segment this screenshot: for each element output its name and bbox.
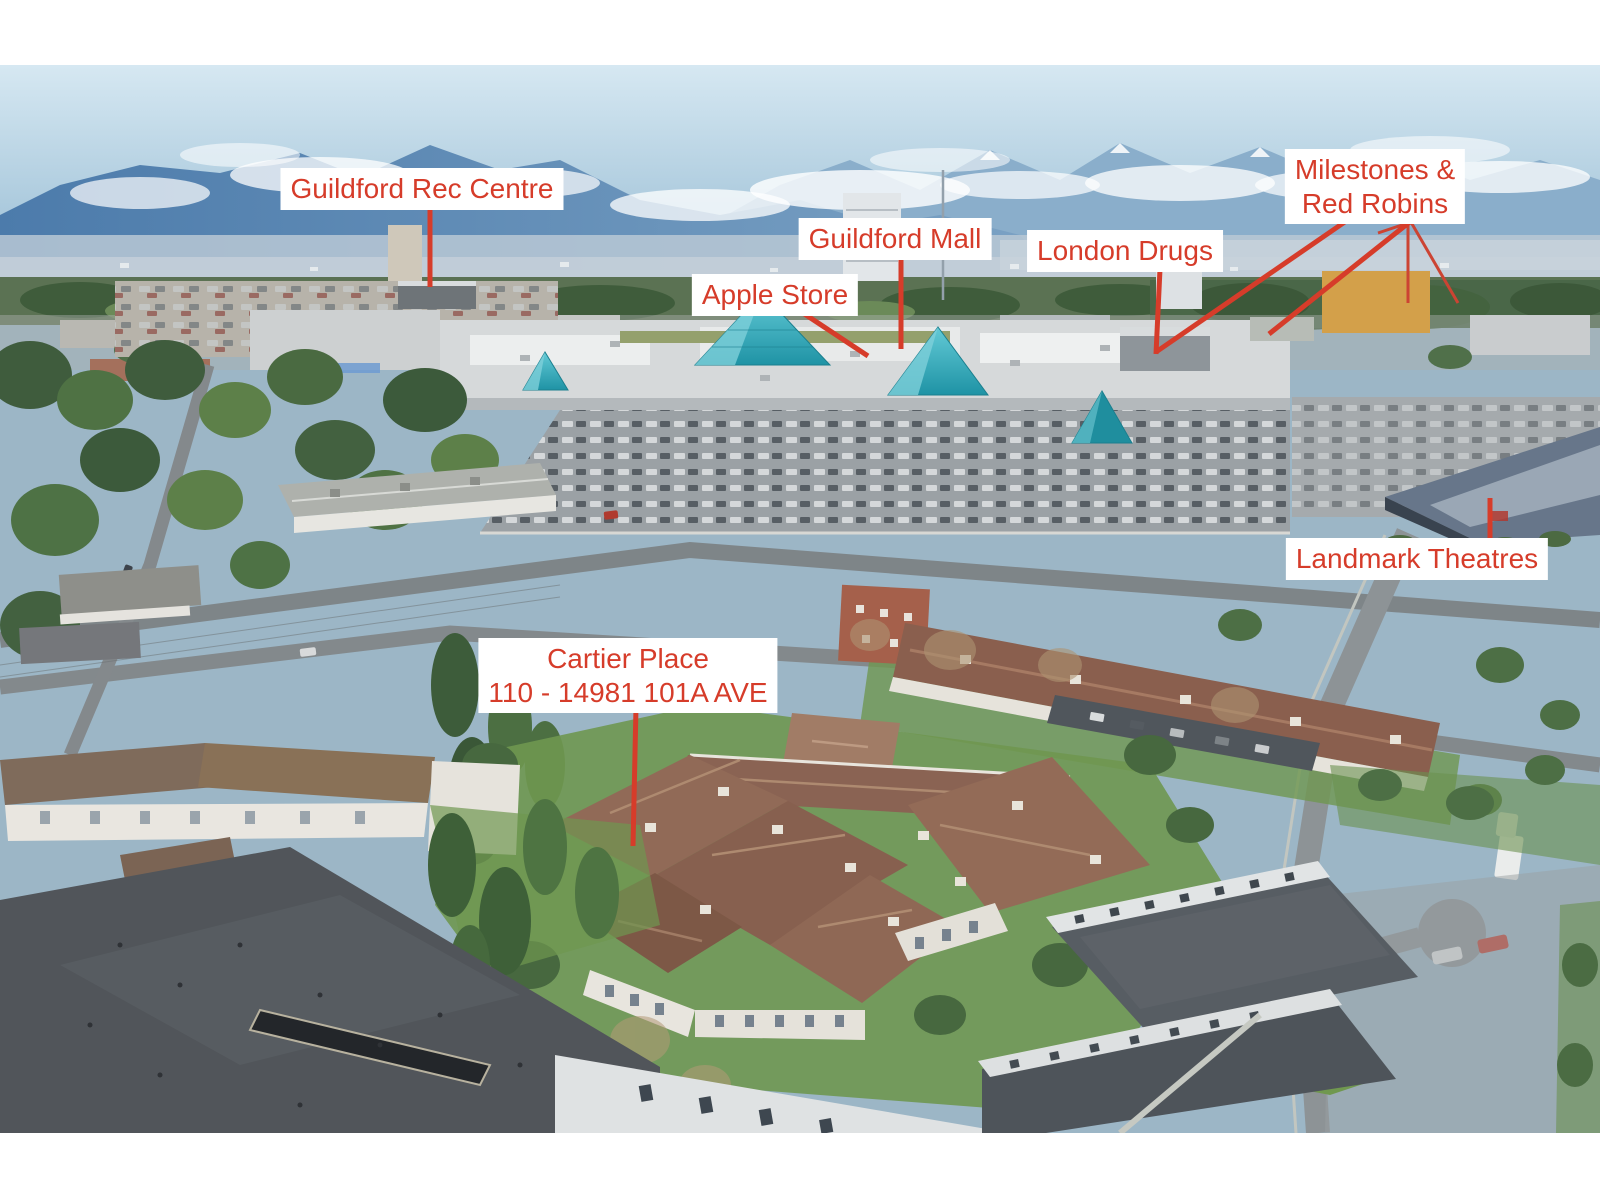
london-drugs-building — [1120, 331, 1210, 371]
label-milestones-red-robins: Milestones & Red Robins — [1285, 149, 1465, 224]
label-apple-store: Apple Store — [692, 274, 858, 316]
label-text: London Drugs — [1037, 234, 1213, 268]
label-text: Guildford Rec Centre — [290, 172, 553, 206]
label-text: 110 - 14981 101A AVE — [488, 676, 767, 710]
rec-centre-building — [398, 283, 476, 309]
label-cartier-place: Cartier Place 110 - 14981 101A AVE — [478, 638, 777, 713]
label-text: Red Robins — [1295, 187, 1455, 221]
beige-tower — [388, 225, 422, 287]
label-text: Guildford Mall — [809, 222, 982, 256]
label-text: Cartier Place — [488, 642, 767, 676]
label-guildford-mall: Guildford Mall — [799, 218, 992, 260]
label-london-drugs: London Drugs — [1027, 230, 1223, 272]
landmark-sign — [1492, 511, 1508, 521]
label-text: Apple Store — [702, 278, 848, 312]
leader-cartier-place — [633, 707, 636, 846]
label-text: Landmark Theatres — [1296, 542, 1538, 576]
label-landmark-theatres: Landmark Theatres — [1286, 538, 1548, 580]
label-text: Milestones & — [1295, 153, 1455, 187]
label-guildford-rec-centre: Guildford Rec Centre — [280, 168, 563, 210]
aerial-photo: Guildford Rec Centre Guildford Mall Appl… — [0, 65, 1600, 1133]
